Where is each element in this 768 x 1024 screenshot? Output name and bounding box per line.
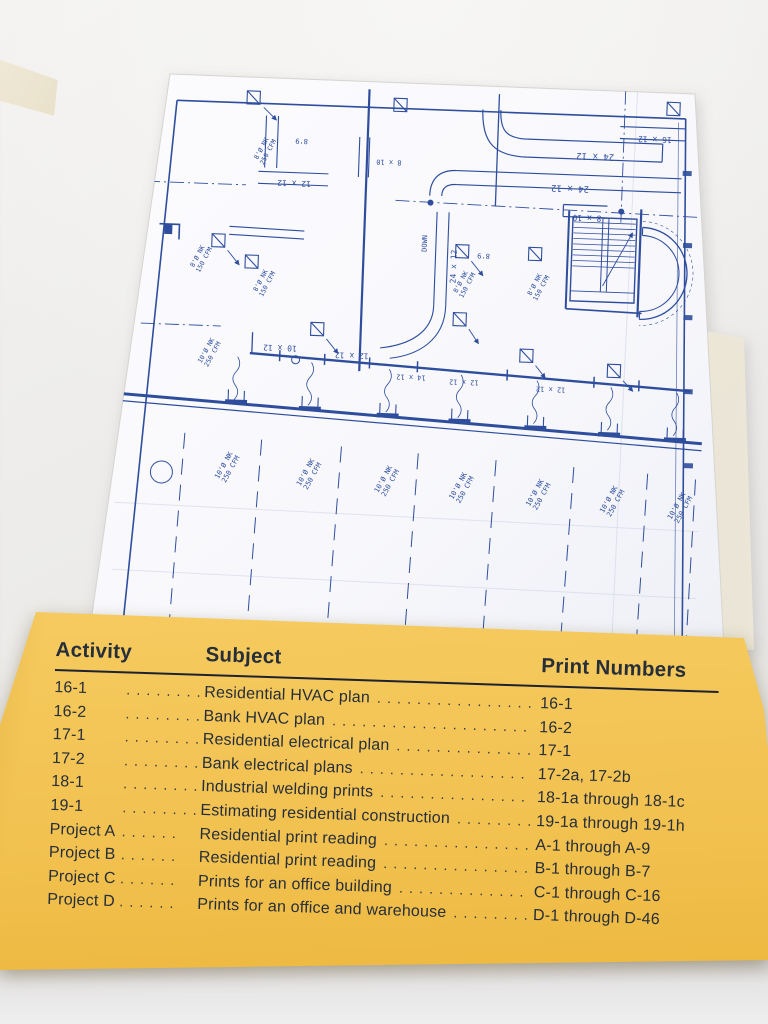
leader-dots: . . . . . . . . . <box>125 706 203 725</box>
leader-dots: . . . . . . . . . . . . . . . . . . . . … <box>360 761 532 783</box>
activity-cell: 17-2 <box>52 750 125 770</box>
activity-cell: Project D <box>47 891 120 911</box>
blueprint-label: 8'9 <box>477 251 490 259</box>
blueprint-label: 12 x 12 <box>277 178 311 188</box>
card-header-row: Activity Subject Print Numbers <box>55 638 719 684</box>
leader-dots: . . . . . . . . . . . . . . . . <box>399 880 528 900</box>
subject-cell: Bank HVAC plan <box>203 708 332 730</box>
activity-cell: 18-1 <box>51 773 124 793</box>
header-activity: Activity <box>55 638 206 667</box>
leader-dots: . . . . . . . . . <box>123 777 201 796</box>
activity-cell: Project C <box>48 868 121 888</box>
leader-dots: . . . . . . . . . . . <box>453 906 527 924</box>
leader-dots: . . . . . . . . . . . . . . . . . . <box>383 856 529 877</box>
blueprint-label: 24 x 12 <box>576 150 614 161</box>
header-print-numbers: Print Numbers <box>541 654 720 684</box>
leader-dots: . . . . . . <box>121 824 199 843</box>
prints-cell: 16-1 <box>534 695 718 719</box>
leader-dots: . . . . . . . . . <box>124 730 202 749</box>
blueprint-label: 10 x 12 <box>263 343 297 353</box>
blueprint-label: 12 x 12 <box>536 385 566 394</box>
activity-cell: Project A <box>49 820 122 840</box>
leader-dots: . . . . . . . . . . . . <box>457 811 531 829</box>
blueprint-label: 12 x 12 <box>449 377 479 386</box>
activity-cell: 19-1 <box>50 797 123 817</box>
blueprint-label: 24 x 12 <box>551 182 589 193</box>
leader-dots: . . . . . . . . . <box>122 800 200 819</box>
leader-dots: . . . . . . . . . . . . . . . . . . . . … <box>396 739 533 760</box>
activity-cell: 17-1 <box>52 726 125 746</box>
index-card: Activity Subject Print Numbers 16-1. . .… <box>0 598 768 998</box>
leader-dots: . . . . . . . . . . . . . . . . . . . . … <box>380 785 531 806</box>
photo-scene: 24 x 1224 x 1216 x 128 x 1012 x 128 x 10… <box>0 0 768 1024</box>
blueprint-label: 8 x 10 <box>572 213 601 223</box>
card-rows: 16-1. . . . . . . . .Residential HVAC pl… <box>47 679 718 937</box>
leader-dots: . . . . . . <box>119 895 197 914</box>
activity-cell: 16-2 <box>53 703 126 723</box>
blueprint-label: 8 x 10 <box>376 158 402 167</box>
index-card-content: Activity Subject Print Numbers 16-1. . .… <box>47 638 720 937</box>
leader-dots: . . . . . . <box>120 871 198 890</box>
blueprint-label: DOWN <box>421 235 430 252</box>
activity-cell: 16-1 <box>54 679 127 699</box>
leader-dots: . . . . . . . . . <box>124 753 202 772</box>
header-subject: Subject <box>205 643 542 678</box>
blueprint-label: 12 x 12 <box>335 350 369 360</box>
blueprint-label: 16 x 12 <box>638 134 672 144</box>
subject-cell: Bank electrical plans <box>202 755 360 778</box>
activity-cell: Project B <box>49 844 122 864</box>
leader-dots: . . . . . . <box>121 847 199 866</box>
leader-dots: . . . . . . . . . . . . . . . . . . <box>384 833 530 854</box>
leader-dots: . . . . . . . . . . . . . . . . . . . . … <box>377 691 535 712</box>
blueprint-label: 14 x 12 <box>396 372 426 381</box>
subject-cell: Residential HVAC plan <box>204 684 377 708</box>
index-card-outer: Activity Subject Print Numbers 16-1. . .… <box>0 598 768 998</box>
blueprint-label: 8'9 <box>295 137 308 145</box>
blueprint-sheet: 24 x 1224 x 1216 x 128 x 1012 x 128 x 10… <box>0 0 768 700</box>
leader-dots: . . . . . . . . . <box>126 682 204 701</box>
